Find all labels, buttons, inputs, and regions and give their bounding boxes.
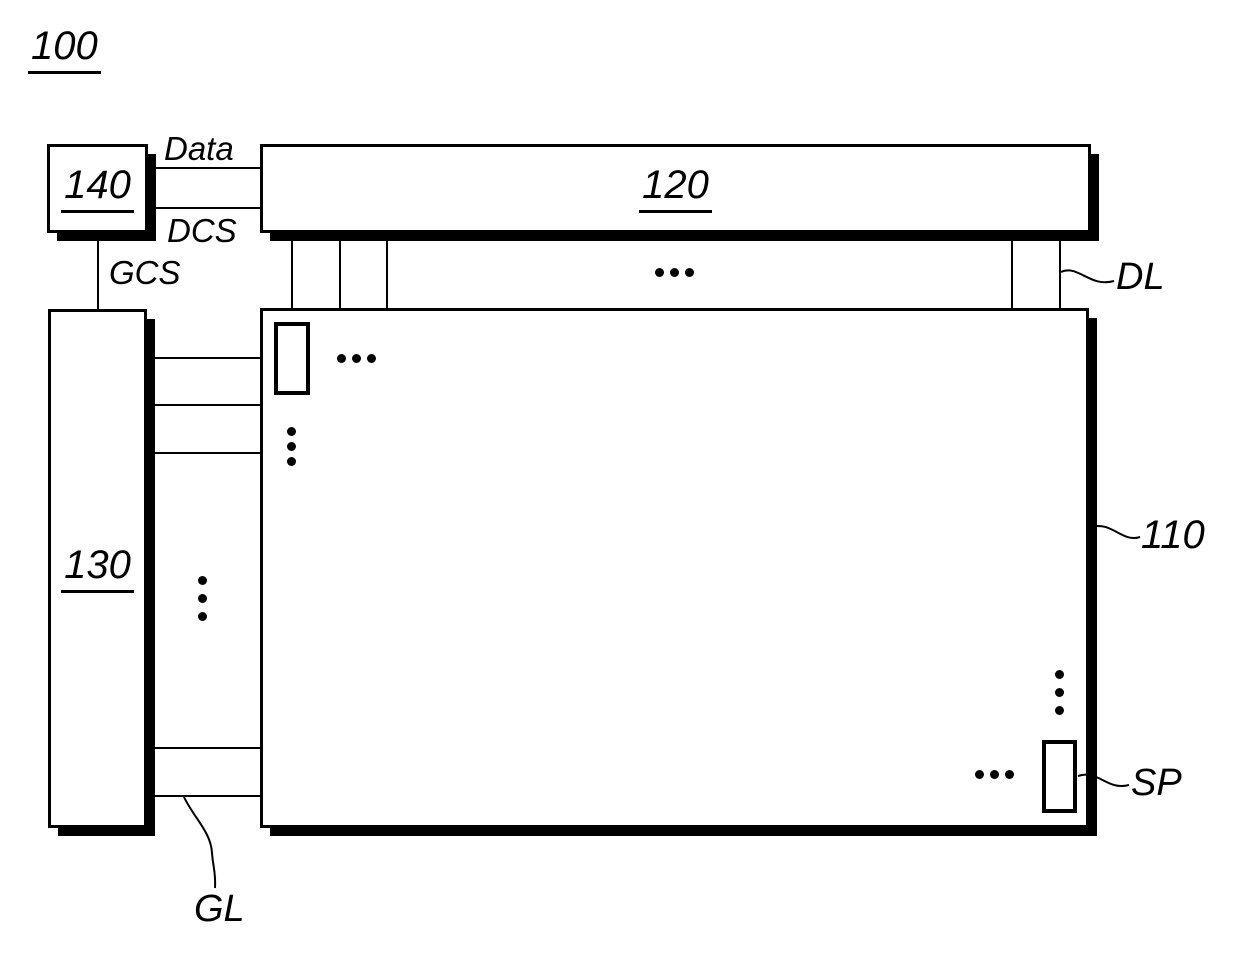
panel-ref-label: 110	[1141, 515, 1205, 555]
gcs-line	[97, 232, 99, 310]
subpixel-rect-top-left	[274, 322, 310, 395]
data-driver-label: 120	[639, 165, 712, 213]
panel-leader-line	[1091, 526, 1140, 538]
data-line-2	[339, 232, 341, 309]
data-bus-line-1	[147, 167, 260, 169]
gate-driver-label: 130	[61, 545, 134, 593]
data-lines-ellipsis	[655, 268, 694, 277]
subpixel-rect-bottom-right	[1042, 740, 1077, 813]
gl-leader-line	[184, 797, 215, 888]
dl-label: DL	[1116, 258, 1165, 296]
gate-line-1	[146, 357, 261, 359]
subpixel-row-ellipsis-bottom	[975, 770, 1014, 779]
sp-label: SP	[1131, 764, 1182, 802]
data-line-4	[1011, 232, 1013, 309]
gate-line-4	[146, 747, 261, 749]
patent-block-diagram: 140 120 130 100 Data DCS GCS DL	[0, 0, 1240, 962]
data-line-1	[291, 232, 293, 309]
data-driver-box: 120	[260, 144, 1091, 233]
gate-line-3	[146, 452, 261, 454]
dcs-signal-label: DCS	[167, 214, 237, 247]
gcs-signal-label: GCS	[109, 256, 181, 289]
gate-line-2	[146, 404, 261, 406]
timing-controller-box: 140	[47, 144, 148, 233]
gl-label: GL	[194, 890, 245, 928]
data-line-5	[1059, 232, 1061, 309]
subpixel-column-ellipsis-left	[287, 427, 296, 466]
gate-driver-box: 130	[48, 309, 147, 828]
data-signal-label: Data	[164, 132, 234, 165]
timing-controller-label: 140	[61, 165, 134, 213]
figure-ref-label: 100	[28, 26, 101, 74]
subpixel-column-ellipsis-right	[1055, 670, 1064, 715]
subpixel-row-ellipsis-top	[337, 354, 376, 363]
dl-leader-line	[1061, 270, 1114, 282]
gate-line-5	[146, 795, 261, 797]
data-line-3	[386, 232, 388, 309]
data-bus-line-2	[147, 207, 260, 209]
gate-lines-ellipsis	[198, 576, 207, 621]
display-panel-box	[260, 308, 1089, 828]
